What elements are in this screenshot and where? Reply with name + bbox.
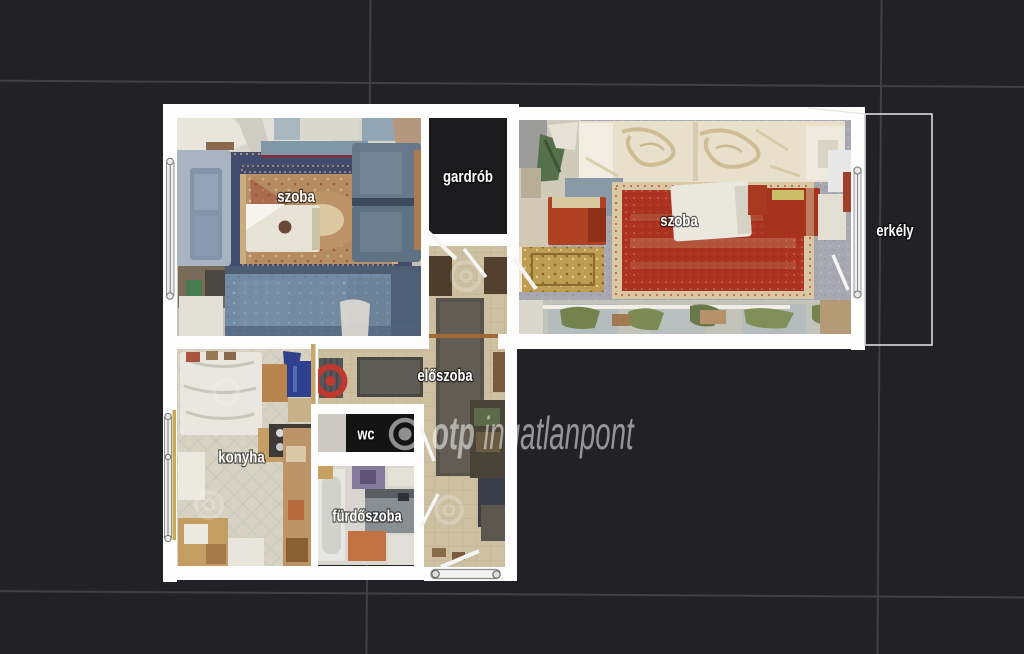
- svg-text:szoba: szoba: [660, 212, 698, 231]
- svg-text:konyha: konyha: [218, 448, 265, 467]
- svg-text:wc: wc: [357, 426, 375, 444]
- svg-text:otpingatlanpont: otpingatlanpont: [432, 409, 635, 460]
- svg-text:szoba: szoba: [277, 188, 315, 207]
- svg-text:erkély: erkély: [876, 223, 914, 241]
- svg-text:gardrób: gardrób: [443, 168, 493, 187]
- svg-text:előszoba: előszoba: [417, 368, 473, 386]
- svg-text:fürdőszoba: fürdőszoba: [332, 508, 402, 526]
